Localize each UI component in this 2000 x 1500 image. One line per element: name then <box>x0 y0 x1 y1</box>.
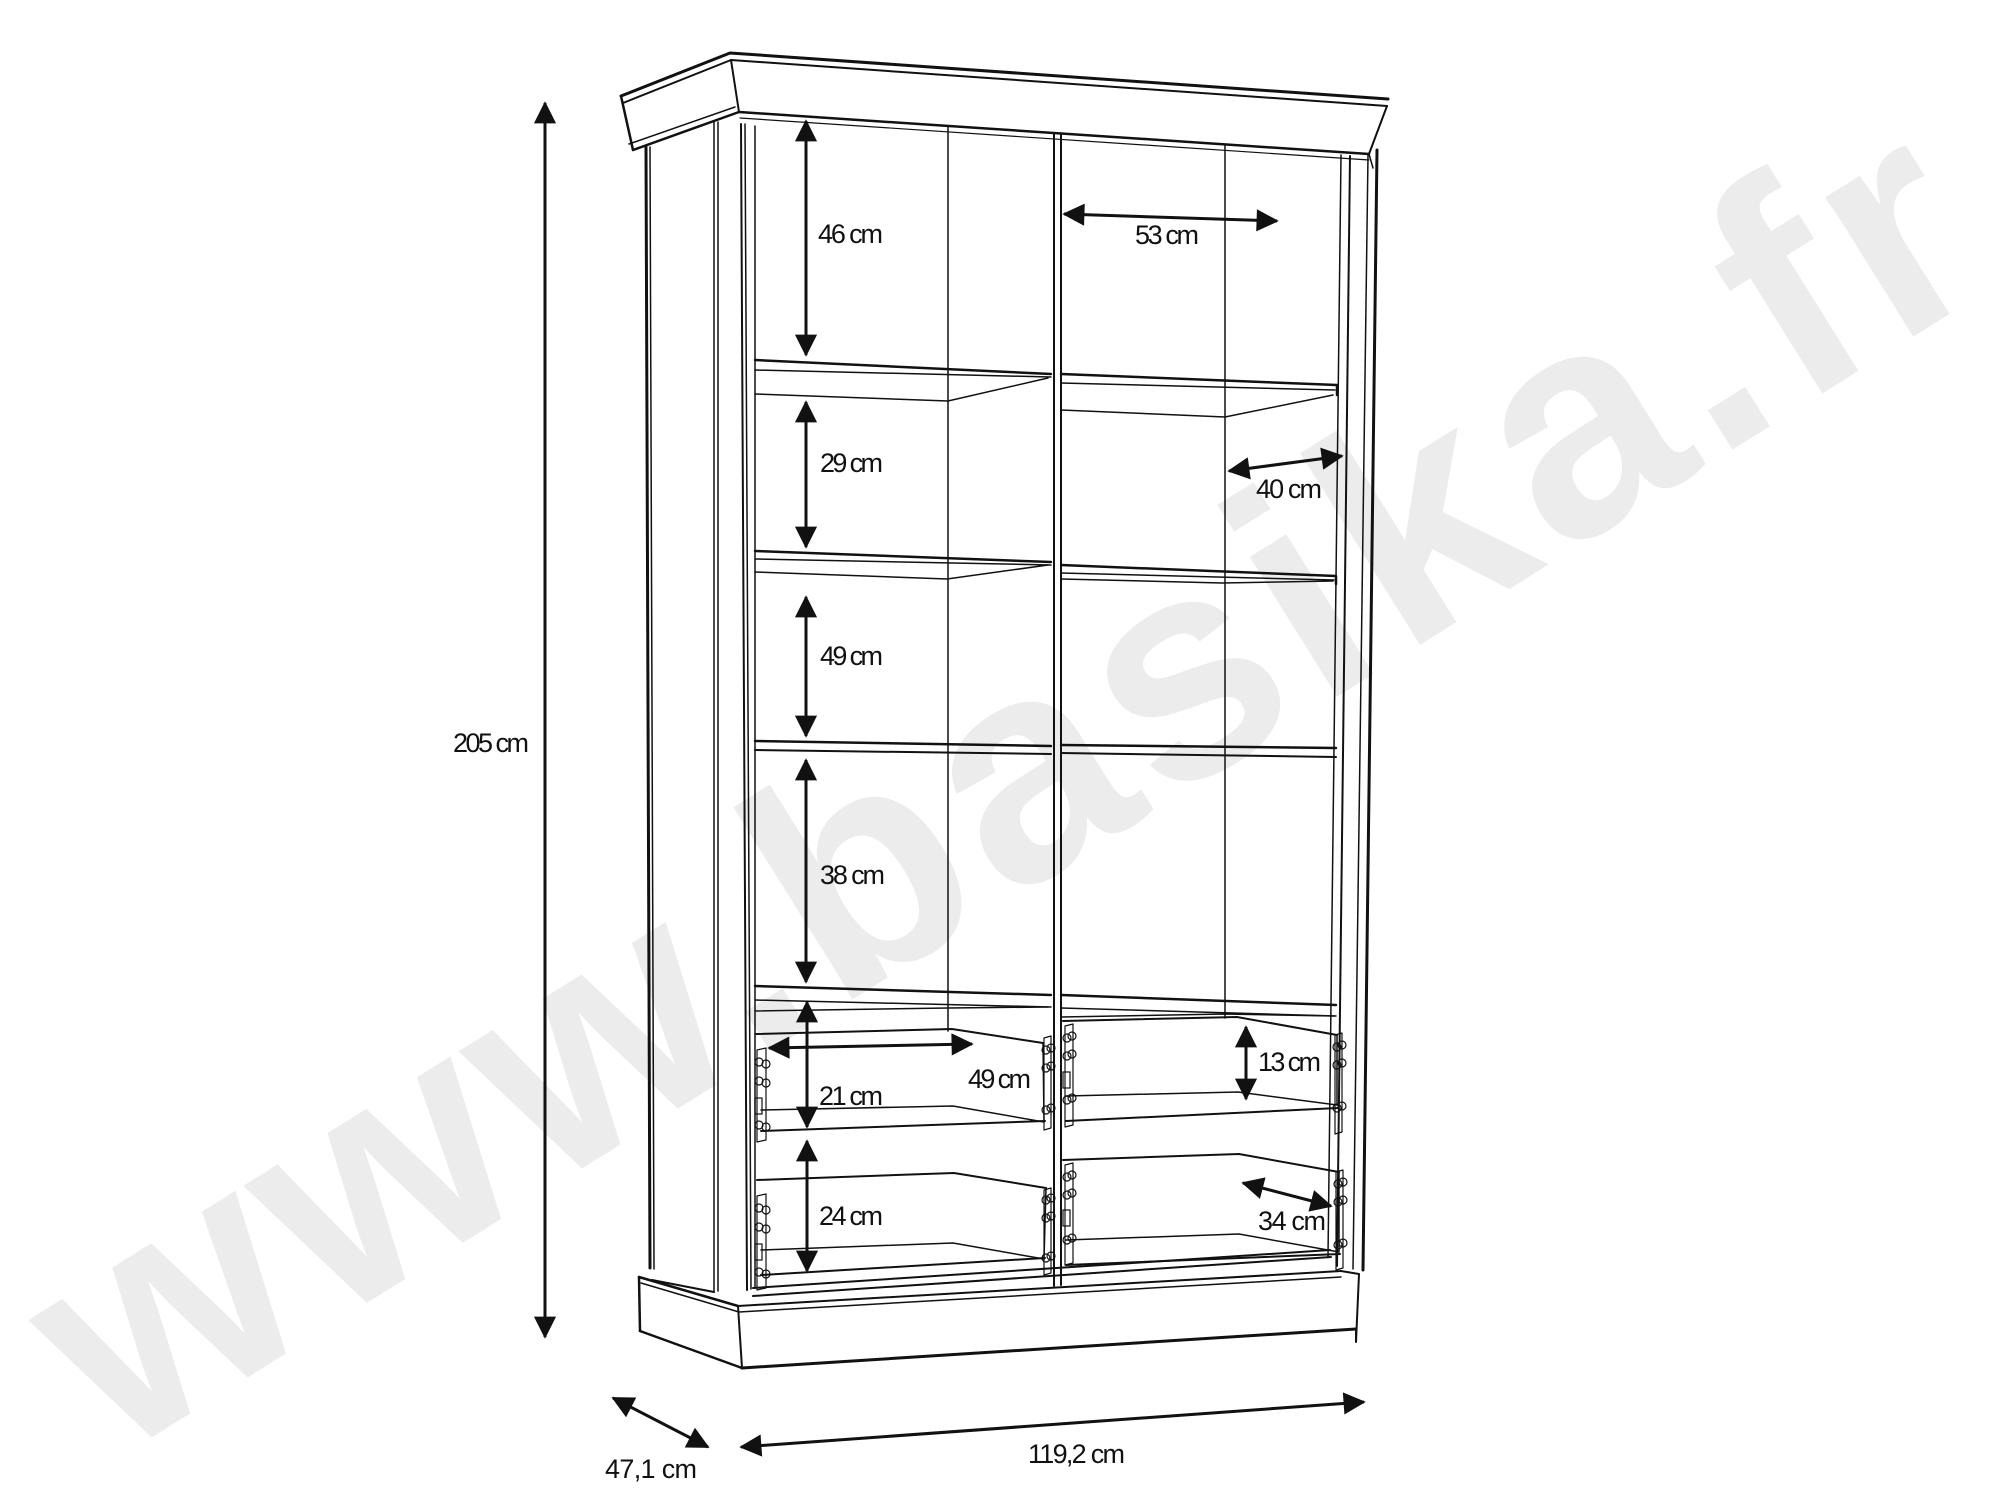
svg-text:46 cm: 46 cm <box>818 219 883 249</box>
svg-text:47,1 cm: 47,1 cm <box>605 1454 697 1484</box>
svg-text:119,2 cm: 119,2 cm <box>1028 1439 1125 1469</box>
svg-text:13 cm: 13 cm <box>1258 1047 1321 1077</box>
svg-text:34 cm: 34 cm <box>1258 1206 1326 1236</box>
svg-text:49 cm: 49 cm <box>968 1064 1031 1094</box>
svg-text:24 cm: 24 cm <box>819 1201 883 1231</box>
svg-text:29 cm: 29 cm <box>820 448 883 478</box>
svg-text:38 cm: 38 cm <box>820 860 885 890</box>
svg-text:21 cm: 21 cm <box>819 1081 883 1111</box>
svg-text:www.basika.fr: www.basika.fr <box>0 40 2000 1500</box>
svg-text:49 cm: 49 cm <box>820 641 883 671</box>
svg-text:53 cm: 53 cm <box>1135 220 1199 250</box>
svg-text:205 cm: 205 cm <box>453 728 529 758</box>
svg-text:40 cm: 40 cm <box>1256 474 1322 504</box>
